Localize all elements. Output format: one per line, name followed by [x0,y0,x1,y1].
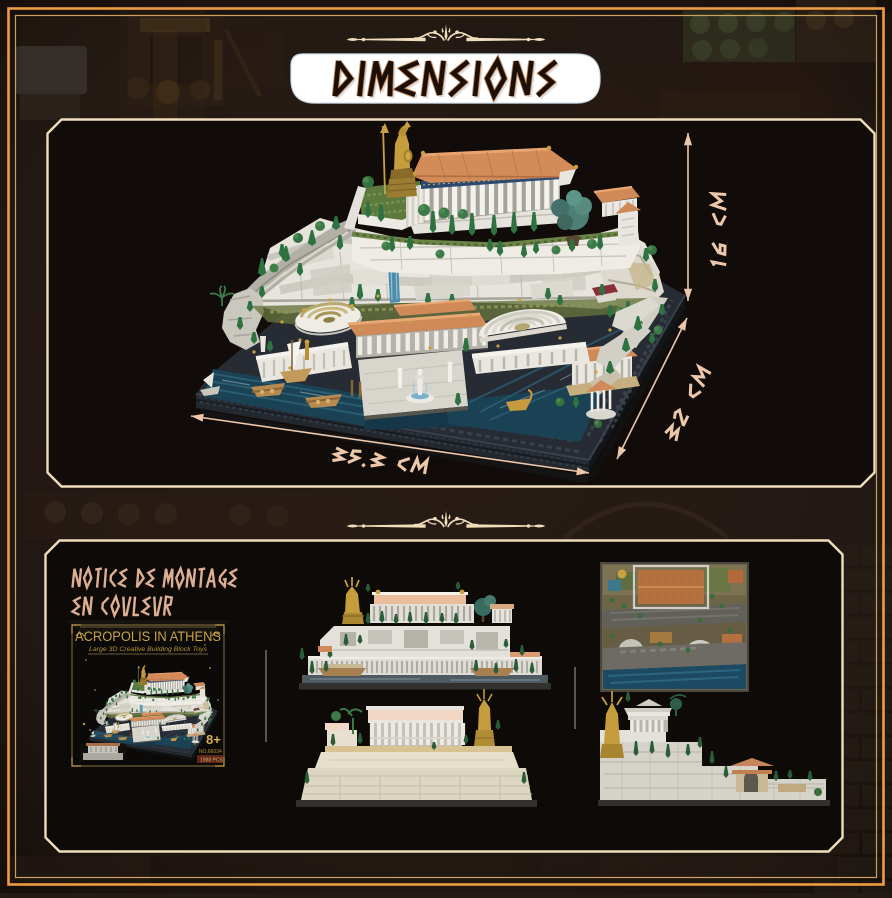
svg-text:Large 3D Creative Building Blo: Large 3D Creative Building Block Toys [89,647,207,653]
svg-text:1988 PCS: 1988 PCS [200,758,223,764]
svg-text:8+: 8+ [206,732,221,747]
svg-text:NO.66034: NO.66034 [199,749,222,755]
svg-text:ACROPOLIS IN ATHENS: ACROPOLIS IN ATHENS [75,629,221,644]
